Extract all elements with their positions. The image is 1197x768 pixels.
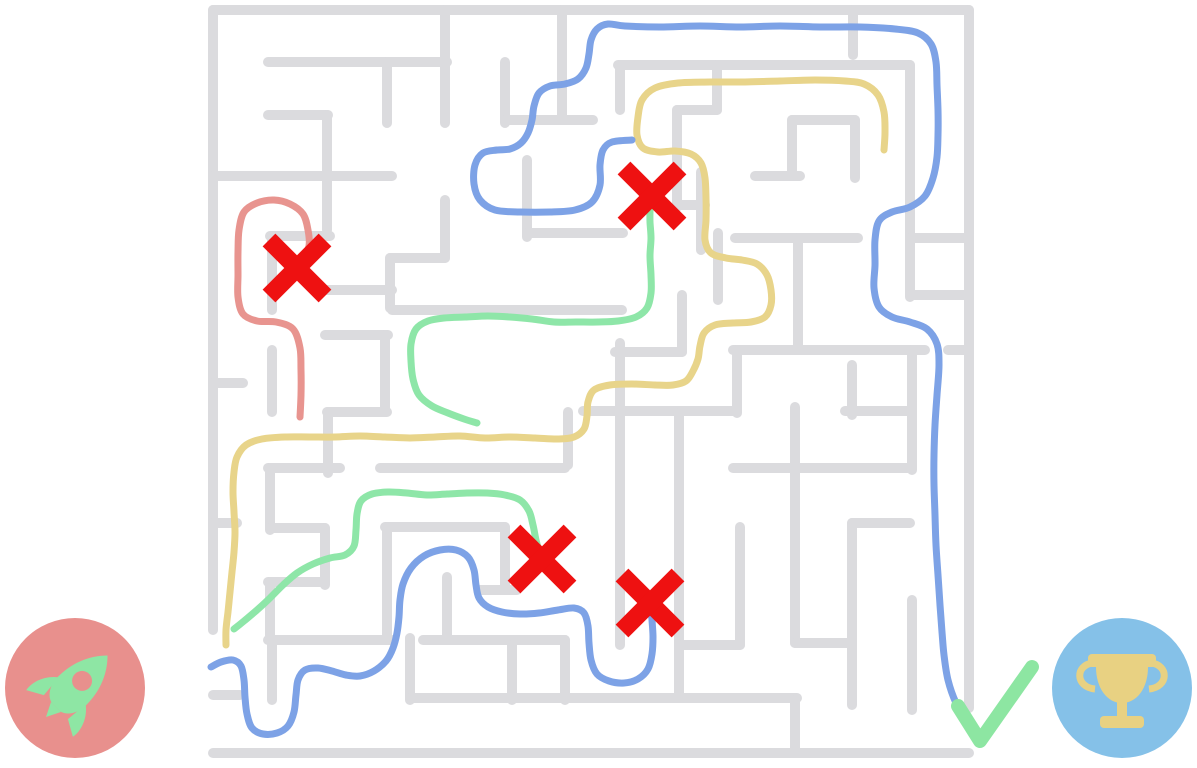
red-x-icon (514, 531, 570, 587)
start-badge[interactable] (5, 618, 145, 758)
goal-badge[interactable] (1052, 618, 1192, 758)
red-x-icon (269, 240, 325, 296)
maze-canvas (0, 0, 1197, 768)
attempt-blue-success (474, 24, 973, 728)
maze-game-screen (0, 0, 1197, 768)
